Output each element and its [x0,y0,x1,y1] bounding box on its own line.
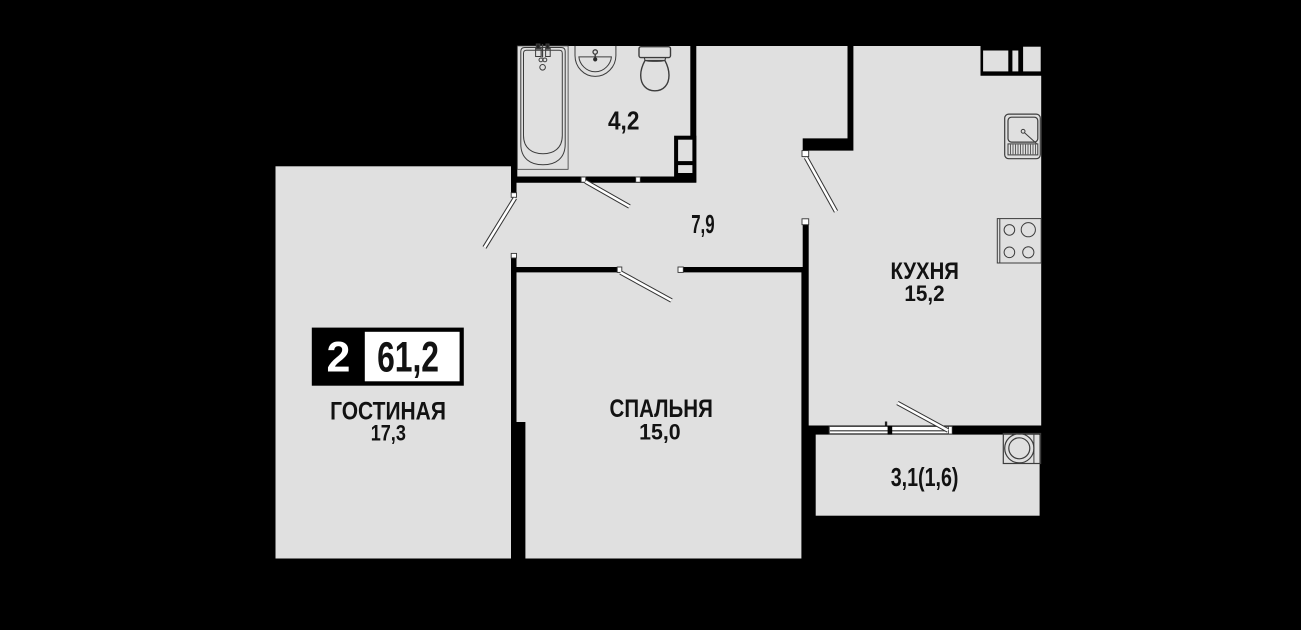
svg-text:3,1(1,6): 3,1(1,6) [891,464,959,492]
svg-text:61,2: 61,2 [377,333,439,381]
svg-text:2: 2 [326,333,350,381]
svg-text:7,9: 7,9 [691,211,714,239]
svg-text:15,0: 15,0 [639,419,681,444]
svg-text:17,3: 17,3 [371,421,406,446]
svg-text:15,2: 15,2 [904,281,944,306]
svg-text:4,2: 4,2 [608,108,639,136]
